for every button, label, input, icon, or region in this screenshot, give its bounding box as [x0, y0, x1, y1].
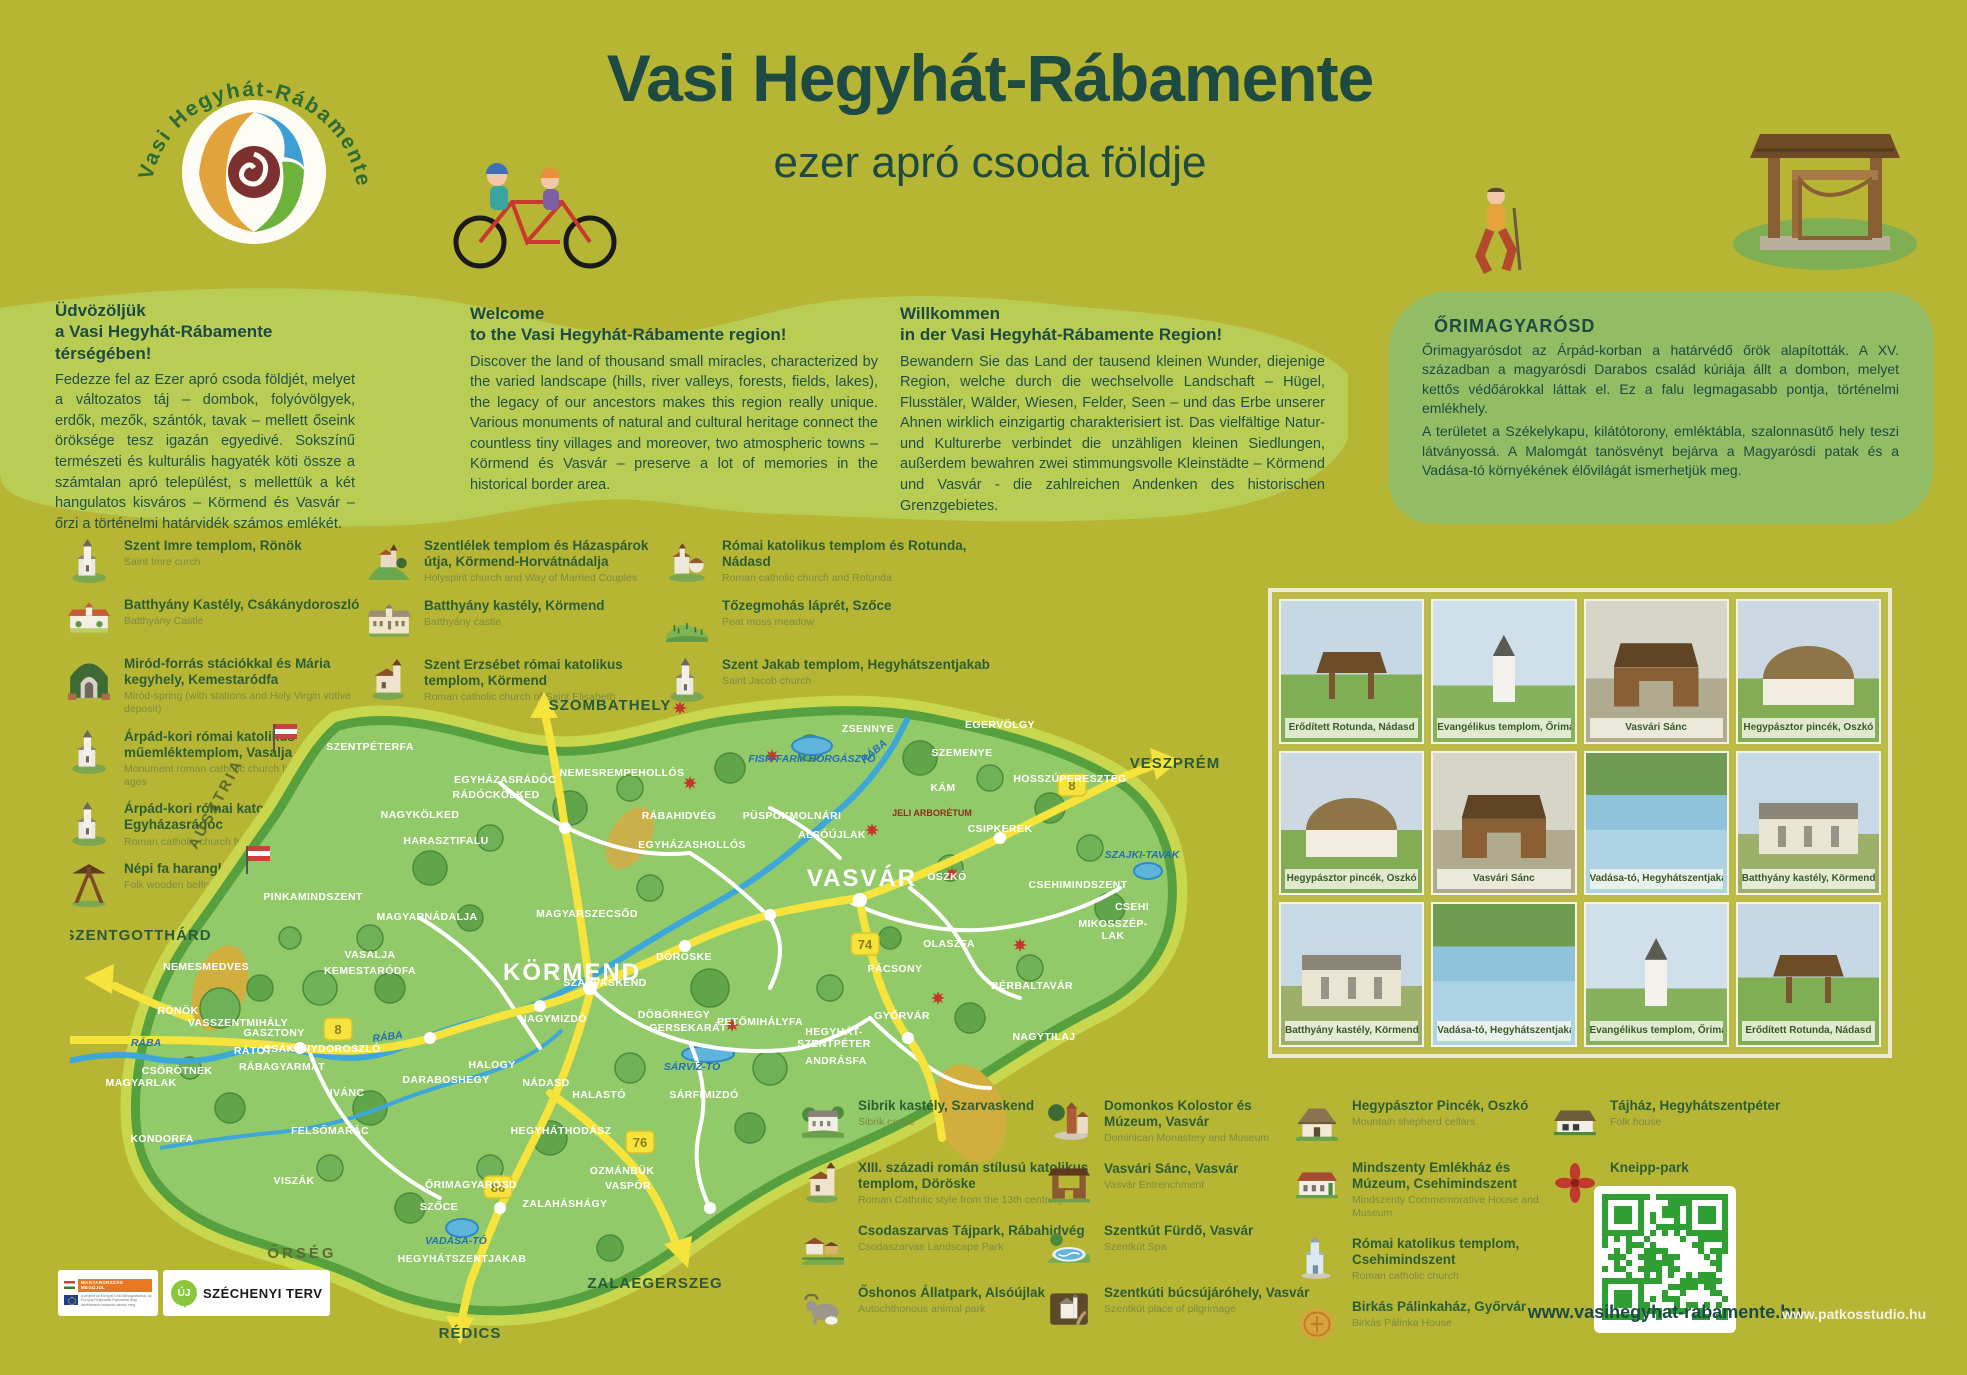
legend-top-column-3: Római katolikus templom és Rotunda, Náda… [664, 538, 999, 703]
map-label: ZALAEGERSZEG [587, 1275, 722, 1292]
photo-thatch: Hegypásztor pincék, Oszkó [1736, 599, 1881, 744]
legend-item-title: Tájház, Hegyhátszentpéter [1610, 1098, 1780, 1114]
map-label: NEMESMEDVES [163, 961, 249, 973]
legend-item-title: Szent Imre templom, Rönök [124, 538, 302, 554]
map-label: GASZTONY [243, 1027, 304, 1039]
church-icon [66, 538, 112, 584]
map-label: OZMÁNBÜK [590, 1164, 654, 1177]
legend-item-title: Szent Erzsébet római katolikus templom, … [424, 657, 676, 689]
magyarorszag-megujul-logo: MAGYARORSZÁG MEGÚJUL A projekt az Európa… [58, 1270, 158, 1316]
hungarian-flag-icon [64, 1281, 75, 1289]
legend-item-subtitle: Saint Imre curch [124, 556, 302, 569]
photo-palace: Batthyány kastély, Körmend [1279, 902, 1424, 1047]
photo-caption: Vasvári Sánc [1437, 869, 1570, 889]
orimagyarosd-body-1: Őrimagyarósdot az Árpád-korban a határvé… [1422, 341, 1899, 418]
legend-item-subtitle: Batthyány Castle [124, 615, 359, 628]
map-label: KEMESTARÓDFA [324, 964, 416, 977]
map-label: VASVÁR [807, 864, 917, 892]
map-label: JELI ARBORÉTUM [892, 808, 972, 818]
map-label: NEMESREMPEHOLLÓS [560, 766, 685, 779]
intro-hu-title-2: a Vasi Hegyhát-Rábamente térségében! [55, 322, 272, 362]
legend-item: Batthyány Kastély, Csákánydoroszló Batth… [66, 597, 366, 643]
orimagyarosd-panel: ŐRIMAGYARÓSD Őrimagyarósdot az Árpád-kor… [1388, 292, 1933, 524]
photo-caption: Vadása-tó, Hegyhátszentjakab [1437, 1021, 1570, 1041]
photo-thatch: Hegypásztor pincék, Oszkó [1279, 751, 1424, 896]
map-label: ZSENNYE [842, 723, 894, 735]
legend-bottom-column-2: Domonkos Kolostor és Múzeum, Vasvár Domi… [1046, 1098, 1312, 1331]
map-label: ALSÓÚJLAK [798, 828, 866, 841]
churchblue-icon [1294, 1236, 1340, 1282]
map-label: NAGYKÖLKED [381, 808, 460, 821]
legend-item: Mindszenty Emlékház és Múzeum, Csehimind… [1294, 1160, 1570, 1220]
legend-item-subtitle: Roman catholic church and Rotunda [722, 572, 999, 585]
map-label: SZEMENYE [932, 747, 993, 759]
legend-item-subtitle: Batthyány castle [424, 616, 605, 629]
legend-item-title: Kneipp-park [1610, 1160, 1689, 1176]
legend-item: Római katolikus templom, Csehimindszent … [1294, 1236, 1570, 1283]
map-label: VADÁSA-TÓ [425, 1234, 487, 1247]
cow-icon [800, 1285, 846, 1331]
map-label: PINKAMINDSZENT [263, 891, 363, 903]
pilgrim-icon [1046, 1285, 1092, 1331]
meadow-icon [664, 598, 710, 644]
map-label: MIKOSSZÉP- [1078, 917, 1147, 930]
photo-gate: Vasvári Sánc [1431, 751, 1576, 896]
map-label: HOSSZÚPERESZTEG [1013, 772, 1126, 785]
map-label: CSÖRÖTNEK [142, 1064, 213, 1077]
map-label: BÉRBALTAVÁR [991, 979, 1073, 992]
photo-caption: Vasvári Sánc [1590, 718, 1723, 738]
map-label: HEGYHÁT- [805, 1025, 863, 1038]
map-label: LAK [1102, 930, 1125, 942]
map-label: ŐRSÉG [267, 1244, 336, 1262]
legend-item-title: Római katolikus templom és Rotunda, Náda… [722, 538, 999, 570]
map-label: MAGYARLAK [106, 1077, 177, 1089]
photo-church: Evangélikus templom, Őrimagyarósd [1431, 599, 1576, 744]
photo-wood: Erődített Rotunda, Nádasd [1279, 599, 1424, 744]
map-label: EGERVÖLGY [965, 718, 1035, 731]
info-board: Vasi Hegyhát-Rábamente Vasi Hegyhát-Rába… [0, 0, 1967, 1375]
legend-item: Domonkos Kolostor és Múzeum, Vasvár Domi… [1046, 1098, 1312, 1145]
castle-icon [66, 597, 112, 643]
svg-text:76: 76 [633, 1135, 647, 1150]
map-label: NAGYMIZDÓ [519, 1012, 587, 1025]
intro-en-title-1: Welcome [470, 304, 544, 323]
map-label: GERSEKARÁT [649, 1021, 727, 1034]
legend-item-subtitle: Roman catholic church [1352, 1270, 1570, 1283]
map-label: RÁBAHIDVÉG [642, 809, 717, 822]
map-label: NAGYTILAJ [1012, 1031, 1075, 1043]
photo-caption: Batthyány kastély, Körmend [1285, 1021, 1418, 1041]
photo-lake: Vadása-tó, Hegyhátszentjakab [1584, 751, 1729, 896]
legend-item-title: Szentkúti búcsújáróhely, Vasvár [1104, 1285, 1309, 1301]
map-label: ZALAHÁSHÁGY [523, 1197, 608, 1210]
photo-caption: Hegypásztor pincék, Oszkó [1285, 869, 1418, 889]
legend-item-title: Tőzegmohás láprét, Szőce [722, 598, 892, 614]
monastery-icon [1046, 1098, 1092, 1144]
intro-hu-title-1: Üdvözöljük [55, 301, 146, 320]
map-label: AUSZTRIA [185, 756, 247, 852]
map-label: DÖBÖRHEGY [638, 1008, 710, 1021]
legend-item: Batthyány kastély, Körmend Batthyány cas… [366, 598, 676, 644]
map-label: SZENTPÉTER [797, 1037, 870, 1050]
photo-caption: Erődített Rotunda, Nádasd [1742, 1021, 1875, 1041]
mansion-icon [366, 598, 412, 644]
map-label: RÁDÓCKÖLKED [452, 788, 539, 801]
legend-item-subtitle: Mountain shepherd cellars [1352, 1116, 1528, 1129]
map-label: SZAJKI-TAVAK [1105, 849, 1181, 861]
map-label: VASPÖR [605, 1179, 651, 1192]
map-label: VISZÁK [274, 1174, 315, 1187]
intro-de-title-2: in der Vasi Hegyhát-Rábamente Region! [900, 325, 1222, 344]
legend-item-title: Római katolikus templom, Csehimindszent [1352, 1236, 1570, 1268]
legend-item: Vasvári Sánc, Vasvár Vasvár Entrenchment [1046, 1161, 1312, 1207]
eu-band-title: MAGYARORSZÁG MEGÚJUL [78, 1279, 152, 1292]
map-label: PÜSPÖKMOLNÁRI [743, 809, 842, 822]
hiker-illustration [1462, 182, 1534, 280]
legend-item-title: Domonkos Kolostor és Múzeum, Vasvár [1104, 1098, 1312, 1130]
legend-item-title: Mindszenty Emlékház és Múzeum, Csehimind… [1352, 1160, 1570, 1192]
photo-gate: Vasvári Sánc [1584, 599, 1729, 744]
legend-item-subtitle: Szentkút place of pilgrimage [1104, 1303, 1309, 1316]
svg-text:74: 74 [858, 937, 873, 952]
coin-icon [1294, 1299, 1340, 1345]
legend-item-title: Hegypásztor Pincék, Oszkó [1352, 1098, 1528, 1114]
farm-icon [800, 1223, 846, 1269]
pool-icon [1046, 1223, 1092, 1269]
map-label: HALOGY [468, 1059, 515, 1071]
map-label: SZOMBATHELY [549, 697, 672, 714]
map-label: HEGYHÁTSZENTJAKAB [398, 1252, 527, 1265]
legend-item: Hegypásztor Pincék, Oszkó Mountain sheph… [1294, 1098, 1570, 1144]
eu-funding-note: A projekt az Európai Unió támogatásával,… [81, 1294, 155, 1307]
intro-de-body: Bewandern Sie das Land der tausend klein… [900, 352, 1325, 517]
rotunda-icon [664, 538, 710, 584]
szechenyi-terv-logo: ÚJ SZÉCHENYI TERV [163, 1270, 330, 1316]
map-label: CSEHIMINDSZENT [1029, 879, 1128, 891]
intro-english: Welcome to the Vasi Hegyhát-Rábamente re… [470, 303, 878, 496]
map-label: CSÁKÁNYDOROSZLÓ [263, 1042, 380, 1055]
legend-item-subtitle: Autochthonous animal park [858, 1303, 1045, 1316]
map-label: CSEHI [1115, 901, 1149, 913]
map-label: PÁCSONY [868, 962, 923, 975]
legend-item: Római katolikus templom és Rotunda, Náda… [664, 538, 999, 585]
photo-grid: Erődített Rotunda, Nádasd Evangélikus te… [1268, 588, 1892, 1058]
map-label: SÁRFIMIZDÓ [669, 1088, 738, 1101]
intro-hu-body: Fedezze fel az Ezer apró csoda földjét, … [55, 370, 355, 535]
legend-item-subtitle: Mindszenty Commemorative House and Museu… [1352, 1194, 1570, 1219]
road-shield-74: 74 [851, 933, 879, 955]
orimagyarosd-title: ŐRIMAGYARÓSD [1434, 316, 1899, 337]
map-label: RÉDICS [439, 1325, 502, 1342]
legend-item: Szentkúti búcsújáróhely, Vasvár Szentkút… [1046, 1285, 1312, 1331]
map-label: FISH-FARM HORGÁSZTÓ [748, 752, 875, 765]
legend-item: Tájház, Hegyhátszentpéter Folk house [1552, 1098, 1802, 1144]
hillchurch-icon [366, 538, 412, 584]
photo-lake: Vadása-tó, Hegyhátszentjakab [1431, 902, 1576, 1047]
manor-icon [800, 1098, 846, 1144]
legend-item-subtitle: Szentkút Spa [1104, 1241, 1253, 1254]
legend-item-subtitle: Folk house [1610, 1116, 1780, 1129]
map-label: ANDRÁSFA [805, 1054, 867, 1067]
map-label: OSZKÓ [927, 870, 966, 883]
churchred-icon [800, 1160, 846, 1206]
map-label: SZENTGOTTHÁRD [70, 927, 212, 944]
region-logo: Vasi Hegyhát-Rábamente [108, 22, 398, 272]
legend-item: Tőzegmohás láprét, Szőce Peat moss meado… [664, 598, 999, 644]
map-label: PETŐMIHÁLYFA [717, 1015, 803, 1028]
woodgate-icon [1046, 1161, 1092, 1207]
legend-item-title: Vasvári Sánc, Vasvár [1104, 1161, 1238, 1177]
photo-caption: Vadása-tó, Hegyhátszentjakab [1590, 869, 1723, 889]
map-label: SZŐCE [420, 1200, 458, 1213]
photo-caption: Batthyány kastély, Körmend [1742, 869, 1875, 889]
map-label: HALASTÓ [572, 1088, 626, 1101]
map-label: RÁBAGYARMAT [239, 1060, 325, 1073]
legend-item-subtitle: Holyspirit church and Way of Married Cou… [424, 572, 676, 585]
map-label: FELSŐMARÁC [291, 1124, 369, 1137]
map-label: IVÁNC [330, 1086, 365, 1099]
legend-top-column-2: Szentlélek templom és Házaspárok útja, K… [366, 538, 676, 704]
uj-pin-icon: ÚJ [171, 1280, 197, 1306]
flower-icon [1552, 1160, 1598, 1206]
map-label: DÖRÖSKE [656, 950, 712, 963]
photo-caption: Evangélikus templom, Őrimagyarósd [1437, 718, 1570, 738]
road-shield-76: 76 [626, 1131, 654, 1153]
map-label: OLASZFA [923, 938, 975, 950]
map-label: SZARVASKEND [563, 977, 646, 989]
intro-en-title-2: to the Vasi Hegyhát-Rábamente region! [470, 325, 786, 344]
map-label: EGYHÁZASRÁDÓC [454, 773, 556, 786]
intro-german: Willkommen in der Vasi Hegyhát-Rábamente… [900, 303, 1325, 516]
map-label: HEGYHÁTHODÁSZ [511, 1124, 612, 1137]
map-label: SZENTPÉTERFA [326, 740, 414, 753]
legend-item-title: Őshonos Állatpark, Alsóújlak [858, 1285, 1045, 1301]
map-label: RÁBA [131, 1036, 161, 1049]
map-label: CSIPKEREK [968, 823, 1033, 835]
cellar-icon [1294, 1098, 1340, 1144]
legend-item: Szent Imre templom, Rönök Saint Imre cur… [66, 538, 366, 584]
legend-item-subtitle: Vasvár Entrenchment [1104, 1179, 1238, 1192]
photo-caption: Evangélikus templom, Őrimagyarósd [1590, 1021, 1723, 1041]
map-label: RÖNÖK [157, 1004, 198, 1017]
photo-wood: Erődített Rotunda, Nádasd [1736, 902, 1881, 1047]
photo-church: Evangélikus templom, Őrimagyarósd [1584, 902, 1729, 1047]
map-label: EGYHÁZASHOLLÓS [638, 838, 746, 851]
legend-item-title: Sibrik kastély, Szarvaskend [858, 1098, 1034, 1114]
map-label: HARASZTIFALU [403, 835, 488, 847]
intro-en-body: Discover the land of thousand small mira… [470, 352, 878, 496]
map-label: KONDORFA [130, 1133, 193, 1145]
legend-item-title: Szentlélek templom és Házaspárok útja, K… [424, 538, 676, 570]
svg-text:8: 8 [334, 1022, 341, 1037]
photo-caption: Hegypásztor pincék, Oszkó [1742, 718, 1875, 738]
tandem-bike-illustration [442, 150, 627, 270]
legend-item-title: Batthyány kastély, Körmend [424, 598, 605, 614]
legend-item: Szentkút Fürdő, Vasvár Szentkút Spa [1046, 1223, 1312, 1269]
funding-logos: MAGYARORSZÁG MEGÚJUL A projekt az Európa… [58, 1270, 330, 1316]
map-label: ŐRIMAGYARÓSD [425, 1178, 517, 1191]
legend-item-subtitle: Dominican Monastery and Museum [1104, 1132, 1312, 1145]
map-label: SÁRVÍZ-TÓ [664, 1060, 721, 1073]
folkhouse-icon [1552, 1098, 1598, 1144]
map-label: VASALJA [344, 949, 395, 961]
road-shield-8: 8 [324, 1018, 352, 1040]
studio-website-url: www.patkosstudio.hu [1782, 1306, 1926, 1322]
page-title: Vasi Hegyhát-Rábamente [430, 40, 1550, 116]
legend-item-title: Miród-forrás stációkkal és Mária kegyhel… [124, 656, 366, 688]
szechenyi-terv-label: SZÉCHENYI TERV [203, 1286, 322, 1301]
map-label: MAGYARNÁDALJA [376, 910, 477, 923]
legend-item-subtitle: Sibrik castle [858, 1116, 1034, 1129]
map-label: NÁDASD [522, 1076, 569, 1089]
eu-flag-icon [64, 1295, 78, 1305]
intro-hungarian: Üdvözöljük a Vasi Hegyhát-Rábamente térs… [55, 300, 355, 534]
legend-item-subtitle: Saint Jacob church [722, 675, 990, 688]
legend-item-title: Szent Jakab templom, Hegyhátszentjakab [722, 657, 990, 673]
szekely-gate-illustration [1730, 110, 1920, 272]
legend-item: Szentlélek templom és Házaspárok útja, K… [366, 538, 676, 585]
legend-item-title: Szentkút Fürdő, Vasvár [1104, 1223, 1253, 1239]
legend-item-subtitle: Peat moss meadow [722, 616, 892, 629]
intro-de-title-1: Willkommen [900, 304, 1000, 323]
map-label: DARABOSHEGY [402, 1074, 489, 1086]
orimagyarosd-body-2: A területet a Székelykapu, kilátótorony,… [1422, 422, 1899, 480]
photo-caption: Erődített Rotunda, Nádasd [1285, 718, 1418, 738]
mindszenty-icon [1294, 1160, 1340, 1206]
map-label: VESZPRÉM [1130, 755, 1221, 772]
legend-item-title: Batthyány Kastély, Csákánydoroszló [124, 597, 359, 613]
map-label: KÁM [930, 781, 955, 794]
map-label: MAGYARSZECSŐD [536, 907, 638, 920]
photo-palace: Batthyány kastély, Körmend [1736, 751, 1881, 896]
map-label: GYŐRVÁR [874, 1009, 930, 1022]
